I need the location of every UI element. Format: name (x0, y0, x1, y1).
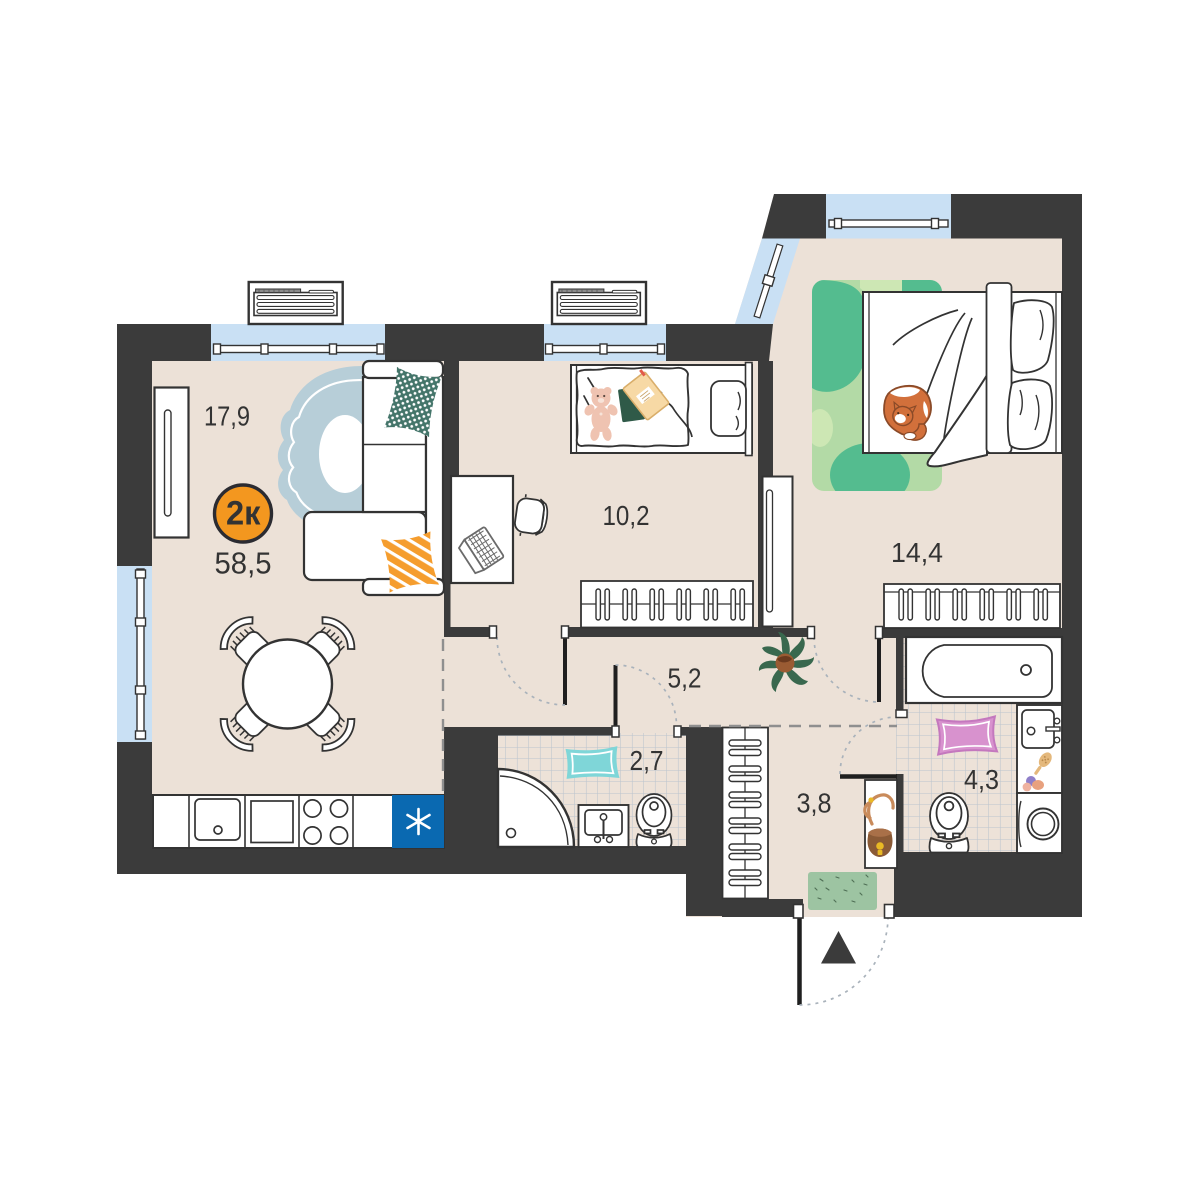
svg-text:2к: 2к (226, 495, 261, 533)
svg-text:58,5: 58,5 (215, 547, 272, 581)
svg-text:17,9: 17,9 (204, 401, 250, 432)
svg-text:2,7: 2,7 (630, 745, 664, 776)
svg-text:14,4: 14,4 (891, 537, 943, 568)
svg-text:3,8: 3,8 (797, 788, 832, 819)
svg-text:5,2: 5,2 (668, 663, 702, 694)
svg-text:4,3: 4,3 (964, 764, 999, 795)
svg-text:10,2: 10,2 (603, 500, 650, 531)
